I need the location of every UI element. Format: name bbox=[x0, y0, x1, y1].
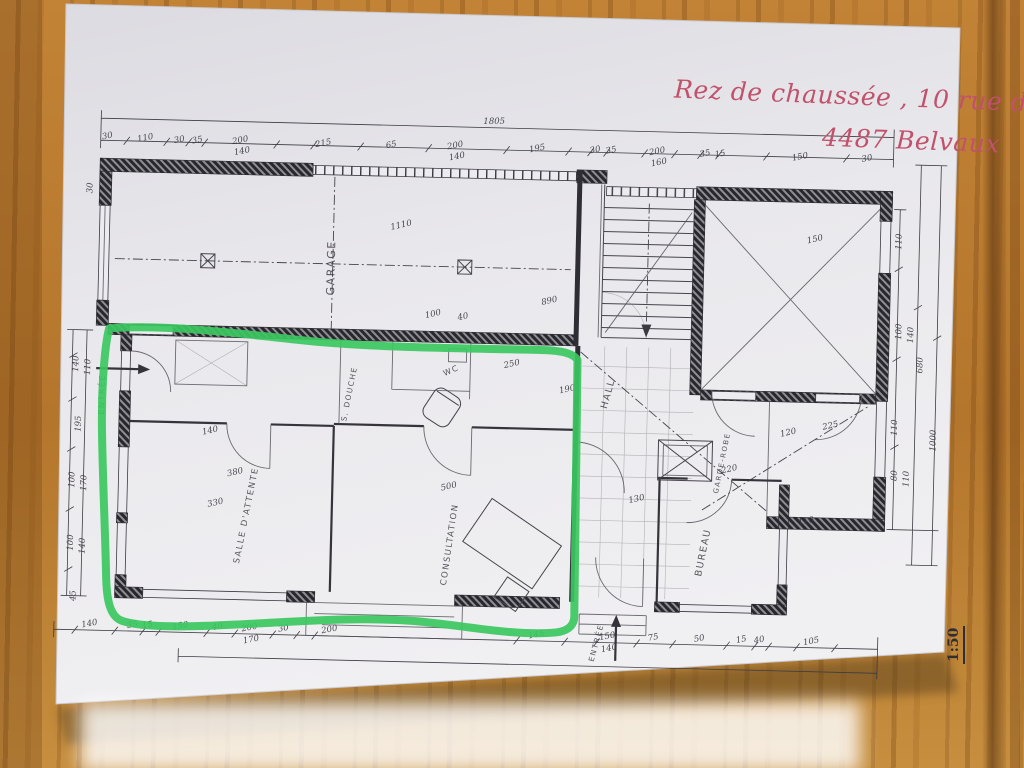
room-label: GARAGE bbox=[324, 240, 338, 295]
dimension-label: 170 bbox=[79, 474, 89, 491]
dimension-label: 110 bbox=[894, 233, 904, 250]
dimension-label: 15 bbox=[714, 148, 726, 160]
dimension-label: 75 bbox=[647, 632, 659, 644]
dimension-label: 45 bbox=[68, 590, 78, 602]
dimension-label: 140 bbox=[906, 326, 916, 343]
dimension-label: 100 bbox=[894, 323, 904, 340]
dimension-label: 100 bbox=[66, 534, 76, 551]
dimension-label: 1000 bbox=[928, 429, 939, 451]
dimension-label: 195 bbox=[74, 415, 84, 431]
dimension-label: 65 bbox=[385, 139, 397, 151]
dimension-label: 110 bbox=[890, 419, 900, 436]
dimension-label: 35 bbox=[699, 148, 711, 160]
dimension-label: 100 bbox=[67, 471, 77, 488]
photo-of-floor-plan: 1805301103035200140215652001401953035200… bbox=[0, 0, 1024, 768]
dimension-label: 140 bbox=[71, 355, 81, 372]
dimension-label: 680 bbox=[915, 356, 925, 373]
light-reflection bbox=[80, 702, 860, 768]
dimension-label: 80 bbox=[890, 470, 900, 482]
dimension-label: 140 bbox=[78, 537, 88, 554]
scene: 1805301103035200140215652001401953035200… bbox=[0, 0, 1024, 768]
dimension-label: 110 bbox=[83, 358, 93, 375]
dimension-label: 30 bbox=[85, 182, 95, 194]
dimension-label: 1805 bbox=[483, 117, 505, 127]
dimension-label: 35 bbox=[605, 145, 617, 157]
dimension-label: 15 bbox=[735, 634, 747, 646]
dimension-label: 110 bbox=[902, 470, 912, 487]
dimension-label: 35 bbox=[191, 135, 203, 147]
scale-note: 1:50 bbox=[946, 626, 965, 664]
